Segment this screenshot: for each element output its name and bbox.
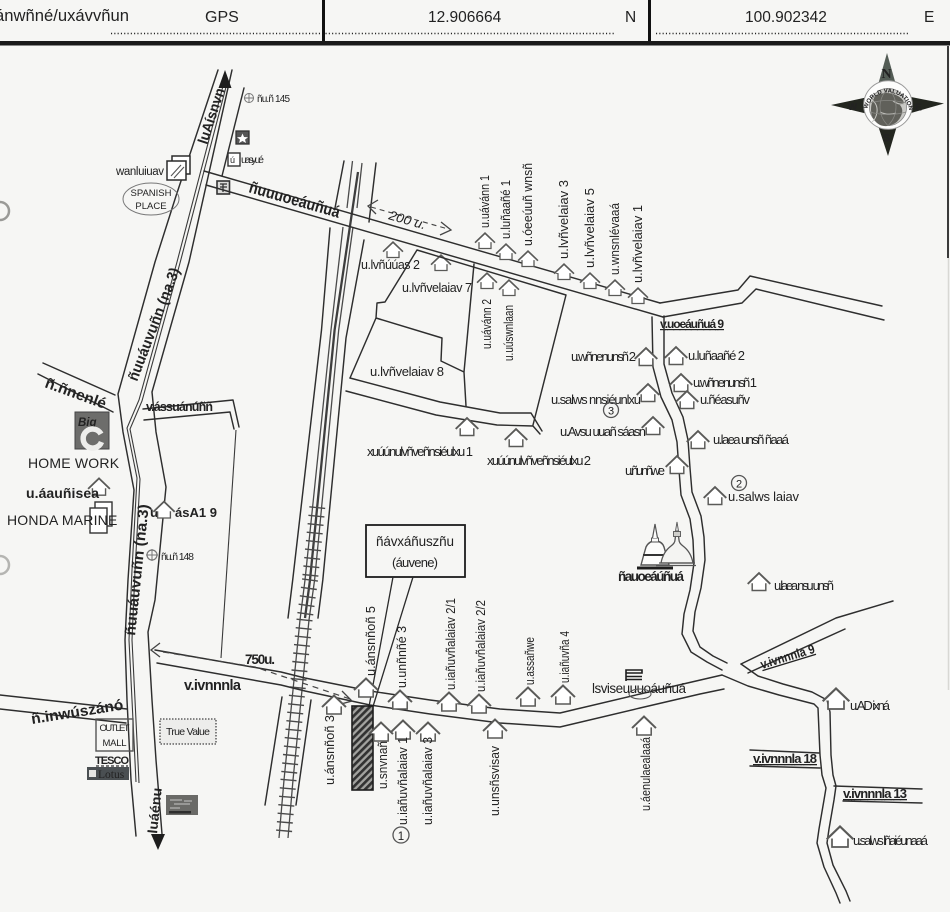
svg-text:u.wñnenunsñ 2: u.wñnenunsñ 2 (571, 349, 636, 364)
svg-text:u.óeeúuñ wnsñ: u.óeeúuñ wnsñ (521, 163, 535, 246)
svg-text:u.snvnañ: u.snvnañ (376, 741, 390, 789)
svg-text:u.iañuvña 4: u.iañuvña 4 (558, 631, 572, 683)
svg-text:HOME WORK: HOME WORK (28, 455, 120, 471)
svg-text:(áuvene): (áuvene) (392, 555, 438, 570)
svg-text:u.áenulaealaaá: u.áenulaealaaá (639, 737, 653, 811)
svg-text:u.laea unsñ ñaaá: u.laea unsñ ñaaá (713, 432, 790, 447)
svg-text:u.iañuvñalaiav 2/1: u.iañuvñalaiav 2/1 (444, 598, 458, 690)
svg-text:u.iañuvñalaiav 1: u.iañuvñalaiav 1 (396, 737, 410, 825)
svg-text:ñauoeáúñuá: ñauoeáúñuá (618, 569, 684, 584)
svg-text:MALL: MALL (103, 738, 127, 749)
svg-text:ásA1 9: ásA1 9 (175, 505, 217, 520)
svg-text:ñu.ñ 148: ñu.ñ 148 (161, 551, 194, 563)
svg-text:u.salws laiav: u.salws laiav (728, 489, 800, 504)
svg-text:uasyué: uasyué (241, 154, 264, 166)
svg-text:u.wñnenunsñ 1: u.wñnenunsñ 1 (693, 375, 757, 390)
svg-text:TESCO: TESCO (95, 755, 129, 767)
svg-text:u.wnsnlévaaá: u.wnsnlévaaá (608, 203, 622, 275)
svg-text:N: N (625, 9, 636, 26)
svg-text:HONDA MARINE: HONDA MARINE (7, 512, 118, 528)
svg-text:ñávxáñuszñu: ñávxáñuszñu (376, 534, 454, 549)
svg-text:u.laea nsu unsñ: u.laea nsu unsñ (774, 578, 834, 593)
svg-text:u.ñéasuñv: u.ñéasuñv (700, 392, 751, 407)
svg-text:ánwñné/uxávvñun: ánwñné/uxávvñun (0, 7, 129, 25)
svg-text:SPANISH: SPANISH (130, 188, 171, 199)
svg-text:750u.: 750u. (245, 652, 275, 667)
svg-text:ñu.ñ 145: ñu.ñ 145 (257, 94, 290, 105)
svg-text:100.902342: 100.902342 (745, 9, 827, 26)
svg-text:xuúúnulvñveñnsiéulxu 2: xuúúnulvñveñnsiéulxu 2 (487, 453, 591, 468)
svg-text:u.unñnñé 3: u.unñnñé 3 (395, 626, 409, 688)
svg-text:u.assañwe: u.assañwe (523, 637, 537, 685)
svg-text:u.lvñvelaiav 1: u.lvñvelaiav 1 (631, 205, 645, 283)
svg-text:wanluiuav: wanluiuav (115, 166, 164, 178)
svg-text:S: S (883, 133, 890, 145)
svg-text:u.salws nnsiéunlxu: u.salws nnsiéunlxu (551, 392, 641, 407)
svg-text:u.AD ixná: u.AD ixná (850, 698, 891, 713)
svg-text:v.ássuánúññ: v.ássuánúññ (146, 400, 213, 414)
svg-text:v.uoeáuñuá 9: v.uoeáuñuá 9 (660, 317, 724, 331)
svg-text:u.lvñvelaiav 7: u.lvñvelaiav 7 (402, 281, 472, 295)
svg-text:v.ivnnnla: v.ivnnnla (184, 678, 242, 694)
svg-text:u.ánsnñoñ 3: u.ánsnñoñ 3 (323, 715, 337, 785)
svg-text:u.uávánn 1: u.uávánn 1 (478, 175, 492, 228)
svg-text:xuúúnulvñveñnsiéulxu 1: xuúúnulvñveñnsiéulxu 1 (367, 444, 473, 459)
svg-text:GPS: GPS (205, 9, 239, 26)
svg-text:E: E (924, 9, 934, 26)
svg-text:u.unsñsvisav: u.unsñsvisav (488, 745, 502, 816)
svg-text:v.ivnnnla 18: v.ivnnnla 18 (753, 751, 817, 766)
svg-text:3: 3 (608, 406, 614, 418)
svg-text:N: N (881, 67, 891, 82)
svg-text:u.iañuvñalaiav 2/2: u.iañuvñalaiav 2/2 (474, 600, 488, 692)
svg-text:u.salws lñaiéunaaá: u.salws lñaiéunaaá (853, 833, 929, 848)
svg-text:u.lvñvelaiav 3: u.lvñvelaiav 3 (557, 180, 571, 259)
svg-text:v.ivnnnla 13: v.ivnnnla 13 (843, 786, 907, 801)
svg-text:u.uávánn 2: u.uávánn 2 (480, 299, 494, 349)
svg-text:OUT LET: OUT LET (100, 723, 130, 734)
svg-text:Lotus: Lotus (98, 769, 125, 781)
svg-text:u.lvñvelaiav 5: u.lvñvelaiav 5 (583, 188, 597, 268)
svg-text:ú: ú (230, 155, 235, 165)
svg-text:u.luñaañé 2: u.luñaañé 2 (688, 348, 745, 363)
svg-text:u.luñaañé 1: u.luñaañé 1 (499, 180, 513, 239)
svg-text:u.ánsnñoñ 5: u.ánsnñoñ 5 (364, 606, 378, 676)
svg-text:u.ñunñwe: u.ñunñwe (625, 463, 665, 478)
svg-text:PLACE: PLACE (135, 201, 166, 212)
svg-text:1: 1 (398, 831, 404, 843)
svg-text:W: W (848, 102, 858, 113)
svg-text:u.lvñvelaiav 8: u.lvñvelaiav 8 (370, 364, 444, 379)
svg-text:u.iañuvñalaiav 3: u.iañuvñalaiav 3 (421, 737, 435, 825)
svg-text:u.uúswnlaan: u.uúswnlaan (502, 305, 516, 361)
svg-text:True Value: True Value (166, 726, 210, 738)
svg-text:12.906664: 12.906664 (428, 9, 502, 26)
svg-text:u.Avsu uuañ sáasn: u.Avsu uuañ sáasn (560, 424, 646, 439)
svg-text:u.áauñisea: u.áauñisea (26, 485, 99, 501)
svg-text:E: E (915, 103, 922, 114)
